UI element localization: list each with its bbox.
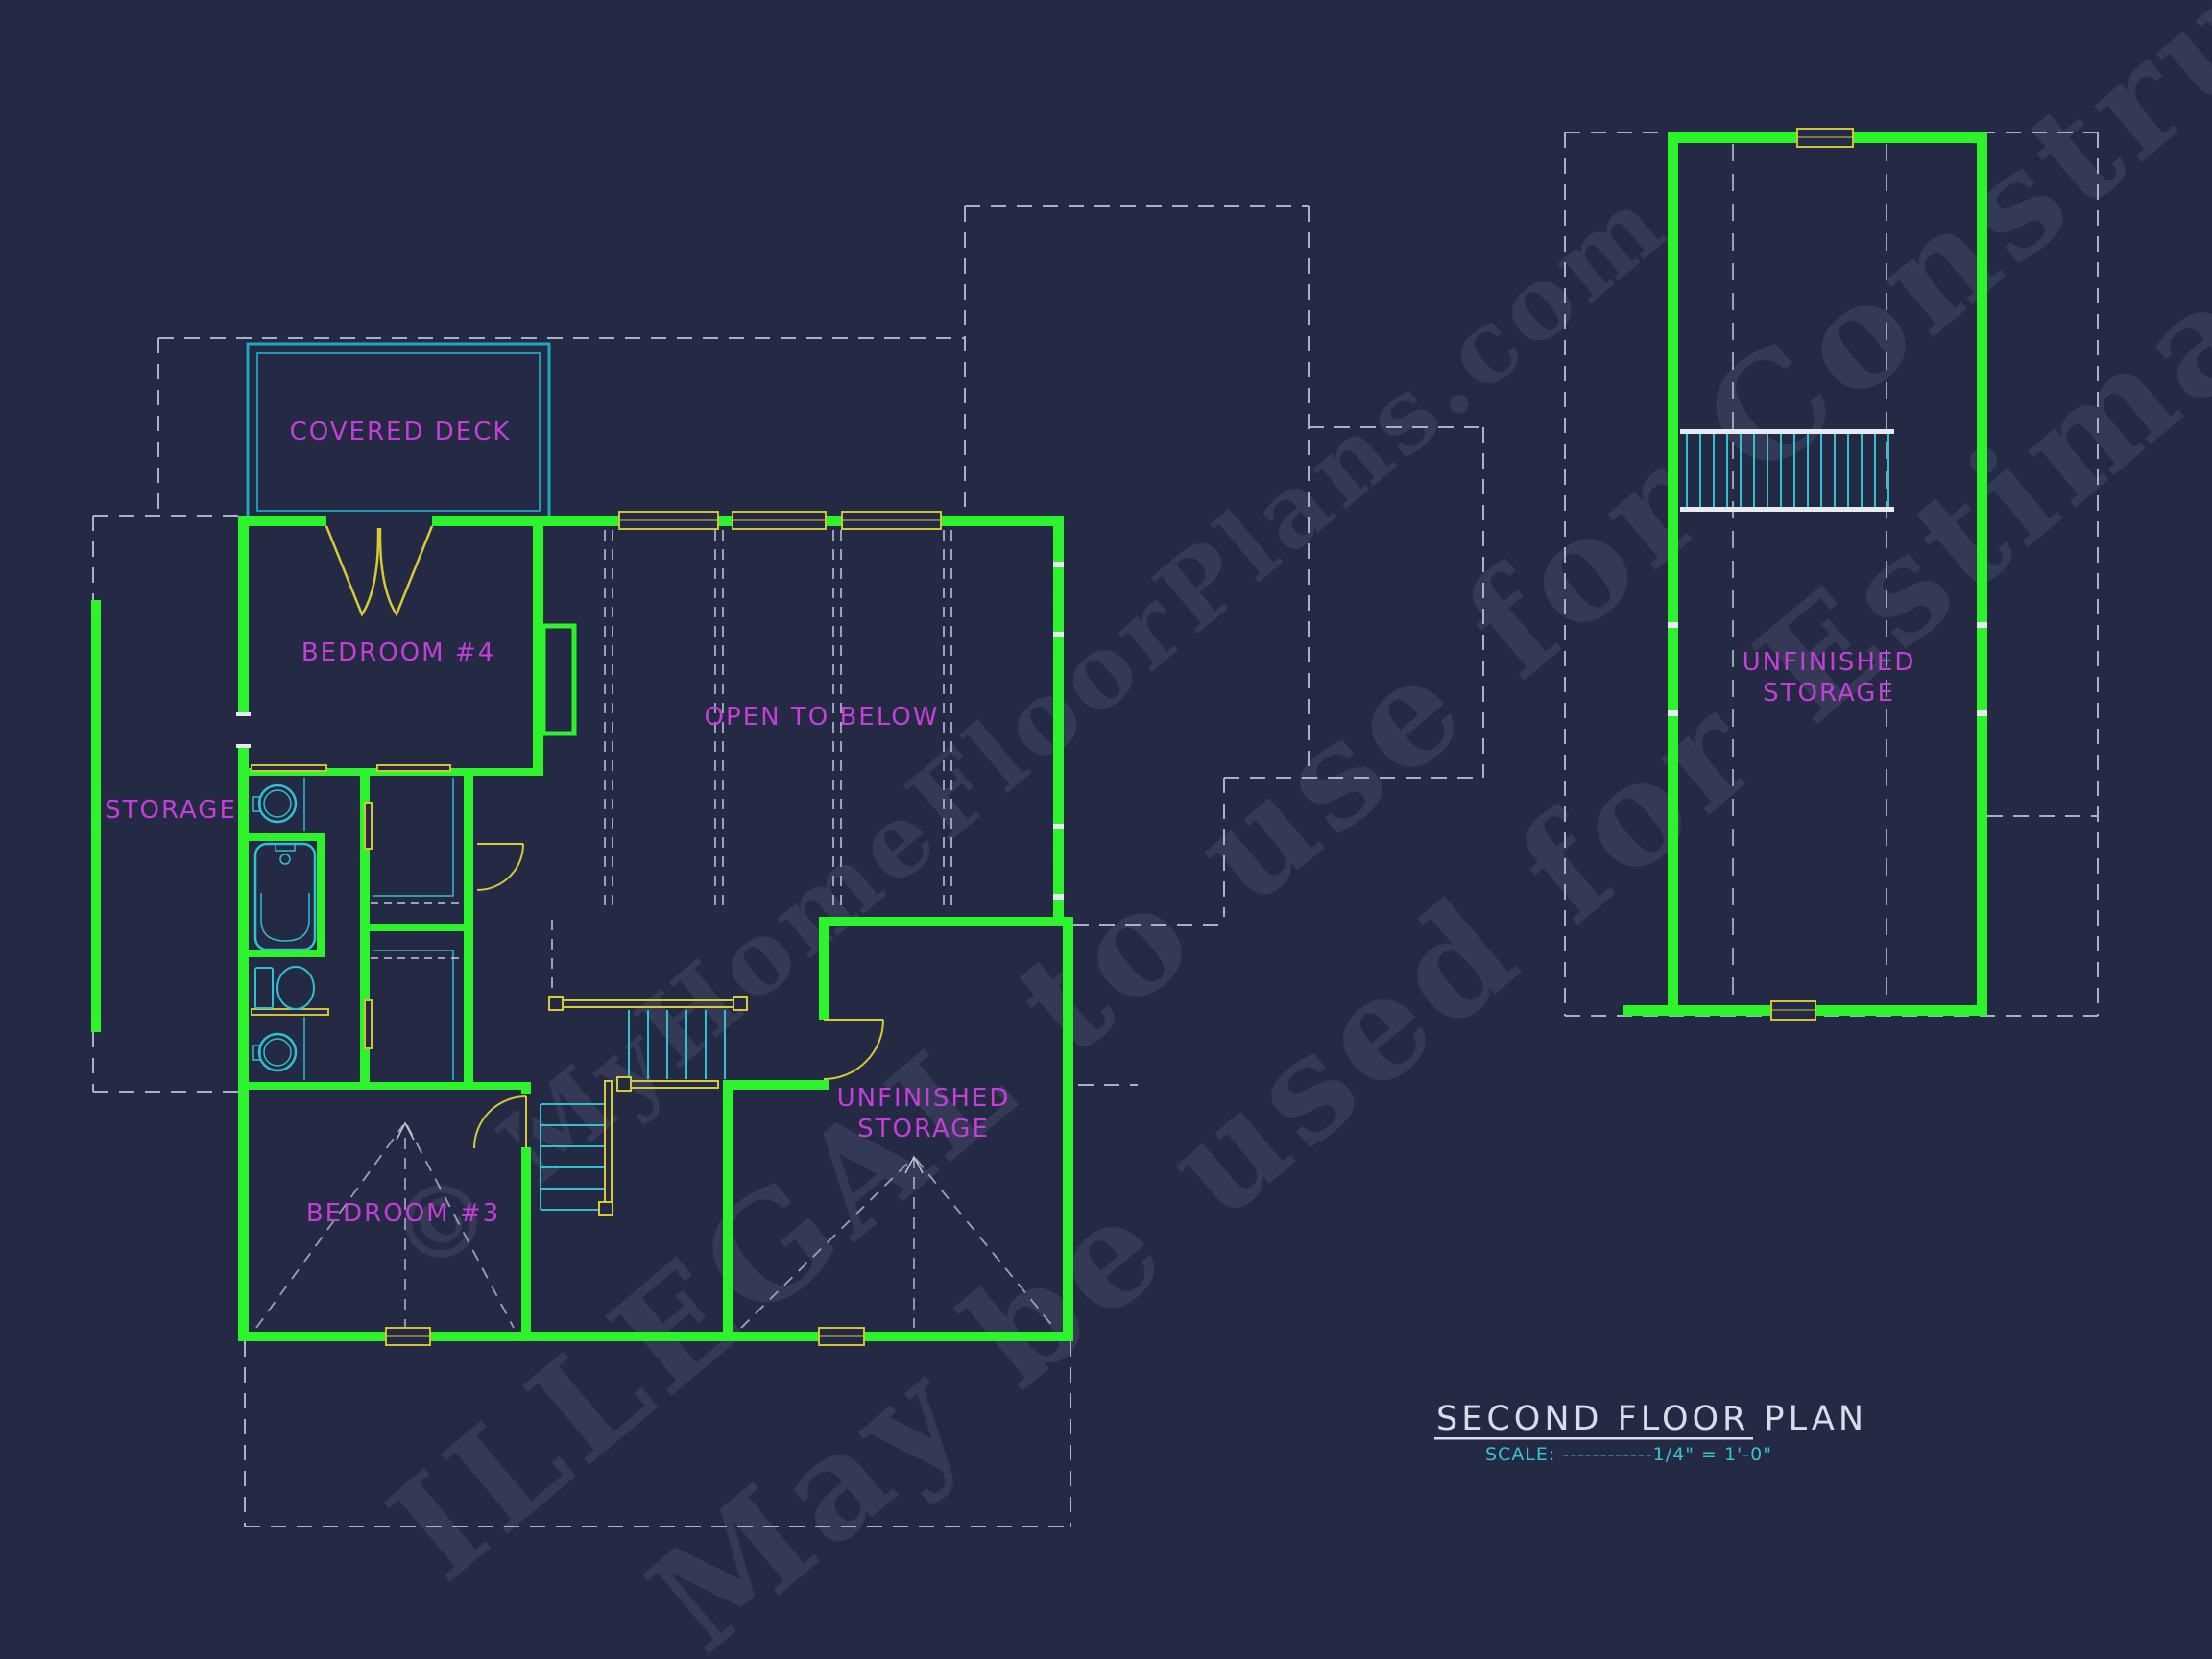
double-door-bedroom4 bbox=[326, 526, 432, 614]
window bbox=[386, 1328, 430, 1345]
walls-main-plan bbox=[91, 514, 1073, 1341]
stair-railing-right-plan bbox=[1680, 429, 1894, 512]
floor-plan-drawing: COVERED DECK BEDROOM #4 STORAGE OPEN TO … bbox=[0, 0, 2212, 1659]
door-opening-deck bbox=[326, 514, 432, 528]
open-to-below-joist-lines bbox=[552, 144, 1887, 1003]
label-bedroom-3: BEDROOM #3 bbox=[306, 1199, 500, 1228]
stair-treads-lower bbox=[541, 1104, 605, 1210]
window bbox=[842, 512, 941, 529]
label-open-to-below: OPEN TO BELOW bbox=[705, 703, 940, 732]
closet-door-panel bbox=[365, 1000, 372, 1048]
window bbox=[733, 512, 826, 529]
room-labels: COVERED DECK BEDROOM #4 STORAGE OPEN TO … bbox=[105, 418, 1915, 1228]
door-bedroom3 bbox=[474, 1096, 526, 1148]
window bbox=[819, 1328, 864, 1345]
label-unfinished-storage-center-line1: UNFINISHED bbox=[837, 1084, 1011, 1113]
plan-scale: SCALE: ------------1/4" = 1'-0" bbox=[1485, 1444, 1772, 1465]
roof-overhang-dashed-lines bbox=[93, 132, 2098, 1527]
bathroom-fixtures bbox=[253, 778, 315, 1080]
sink-top bbox=[253, 785, 296, 822]
staircase bbox=[541, 997, 747, 1215]
label-bedroom-4: BEDROOM #4 bbox=[301, 638, 495, 667]
window bbox=[619, 512, 718, 529]
vanity-counter bbox=[377, 765, 450, 771]
walls-right-plan bbox=[1623, 132, 1987, 1016]
toilet bbox=[255, 967, 314, 1009]
closet-door-panel bbox=[365, 803, 372, 849]
window bbox=[1771, 1001, 1815, 1020]
bathtub bbox=[255, 844, 315, 950]
label-covered-deck: COVERED DECK bbox=[290, 418, 512, 446]
door-opening-bedroom4 bbox=[236, 715, 251, 744]
doors-and-counters bbox=[252, 526, 883, 1148]
vanity-counter bbox=[252, 765, 326, 771]
window-niche-bedroom4 bbox=[543, 626, 574, 733]
window bbox=[1797, 129, 1853, 147]
label-unfinished-storage-right-line1: UNFINISHED bbox=[1743, 648, 1916, 677]
door-unfinished-storage bbox=[824, 1020, 883, 1079]
right-plan bbox=[1623, 129, 1987, 1020]
label-storage-left: STORAGE bbox=[105, 796, 237, 825]
label-unfinished-storage-center-line2: STORAGE bbox=[857, 1115, 990, 1143]
title-underline bbox=[1434, 1437, 1753, 1440]
floor-plan-canvas: © MyHomeFloorPlans.com ILLEGAL to use fo… bbox=[0, 0, 2212, 1659]
plan-title: SECOND FLOOR PLAN bbox=[1436, 1400, 1867, 1438]
sink-bottom bbox=[253, 1034, 296, 1070]
title-block: SECOND FLOOR PLAN SCALE: ------------1/4… bbox=[1434, 1400, 1867, 1465]
stair-treads-upper bbox=[629, 1010, 725, 1079]
door-closet-hall bbox=[477, 844, 523, 890]
vanity-counter bbox=[252, 1009, 328, 1015]
label-unfinished-storage-right-line2: STORAGE bbox=[1763, 679, 1895, 708]
